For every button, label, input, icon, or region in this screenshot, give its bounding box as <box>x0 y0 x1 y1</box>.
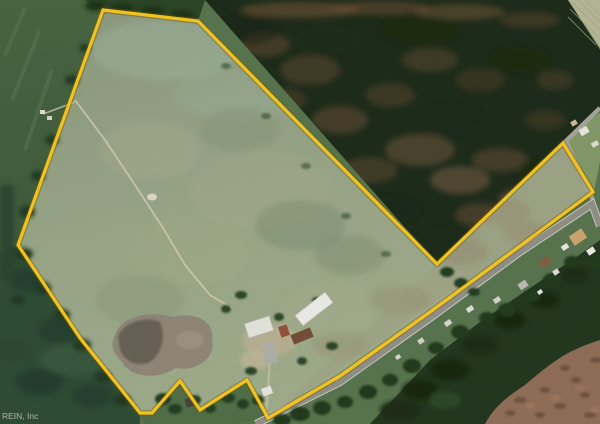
grain-overlay <box>0 0 600 424</box>
satellite-image: REIN, Inc <box>0 0 600 424</box>
watermark-text: REIN, Inc <box>2 411 39 421</box>
aerial-map: REIN, Inc <box>0 0 600 424</box>
